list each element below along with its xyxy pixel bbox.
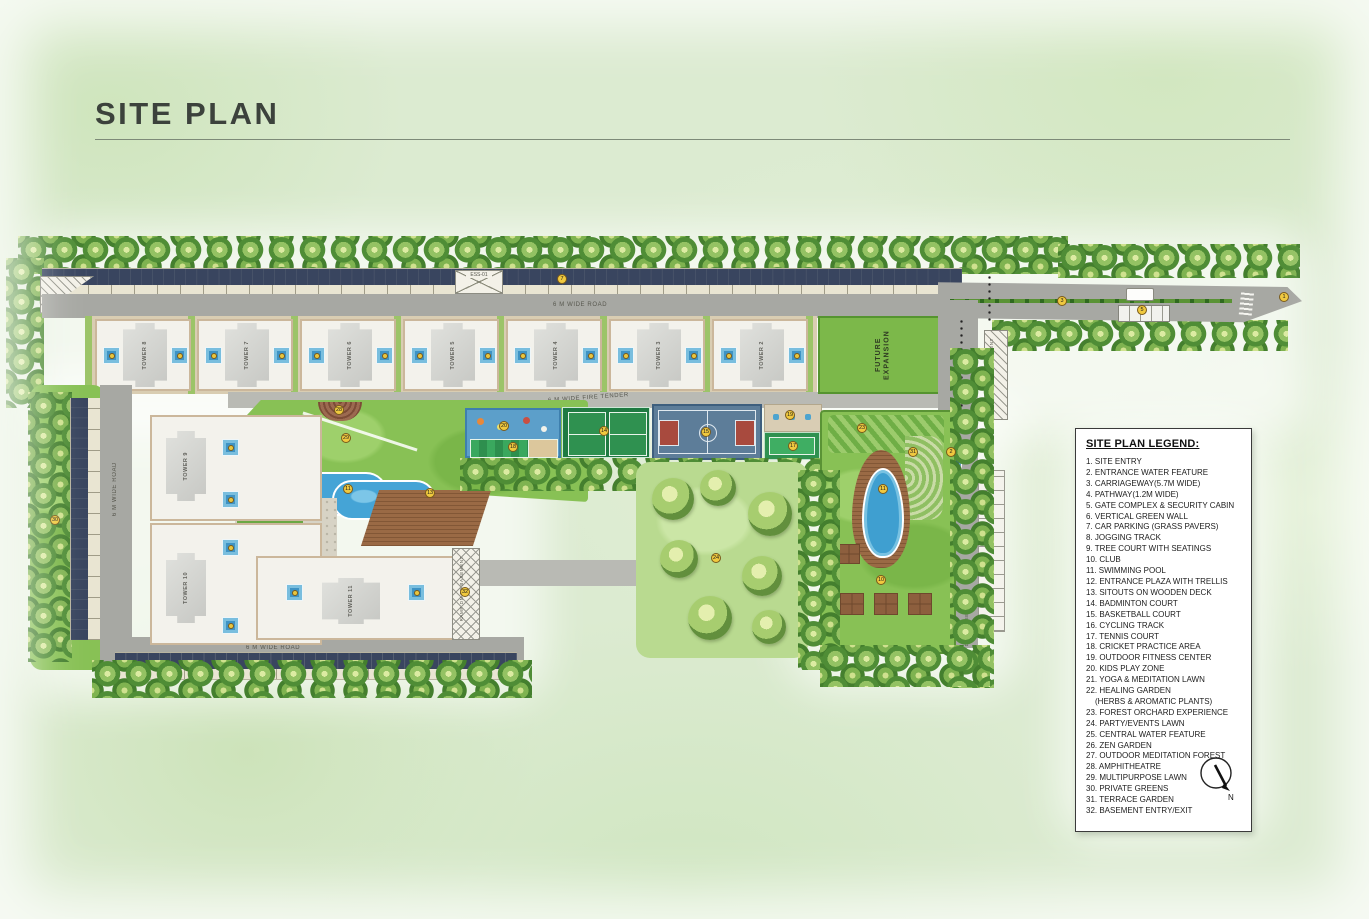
tree-court-seating bbox=[376, 347, 393, 364]
legend-item: 3. CARRIAGEWAY(5.7M WIDE) bbox=[1086, 479, 1243, 490]
legend-item: 26. ZEN GARDEN bbox=[1086, 741, 1243, 752]
site-plan-canvas: SITE PLAN ESS-01 6 M WIDE ROAD TOWER 8TO… bbox=[0, 0, 1369, 919]
tree-border-entry-top bbox=[1058, 244, 1300, 278]
zebra-crossing bbox=[1239, 290, 1254, 315]
tree-border-cluster-left bbox=[28, 392, 72, 662]
top-road bbox=[42, 294, 962, 318]
page-title: SITE PLAN bbox=[95, 96, 279, 132]
amenity-marker: 15 bbox=[701, 427, 711, 437]
future-expansion-area: FUTURE EXPANSION bbox=[818, 316, 948, 394]
legend-item: 2. ENTRANCE WATER FEATURE bbox=[1086, 468, 1243, 479]
ess-label: ESS-01 bbox=[466, 272, 492, 278]
tree-court-seating bbox=[408, 584, 425, 601]
tree-court-seating bbox=[514, 347, 531, 364]
amenity-marker: 10 bbox=[876, 575, 886, 585]
legend-item: 4. PATHWAY(1.2M WIDE) bbox=[1086, 490, 1243, 501]
tree-border-club-bottom bbox=[820, 645, 990, 687]
legend-item: 16. CYCLING TRACK bbox=[1086, 621, 1243, 632]
tower-building: TOWER 4 bbox=[534, 323, 578, 387]
legend-item: 14. BADMINTON COURT bbox=[1086, 599, 1243, 610]
forest-tree bbox=[742, 556, 782, 596]
electrical-substation-box: ESS-01 bbox=[455, 270, 503, 294]
legend-item: 24. PARTY/EVENTS LAWN bbox=[1086, 719, 1243, 730]
wooden-deck bbox=[361, 490, 491, 546]
sitout-deck bbox=[908, 593, 932, 615]
tree-court-seating bbox=[222, 491, 239, 508]
tower-building: TOWER 3 bbox=[637, 323, 681, 387]
tower-building: TOWER 10 bbox=[166, 553, 206, 623]
play-equipment bbox=[477, 418, 484, 425]
legend-item: (HERBS & AROMATIC PLANTS) bbox=[1086, 697, 1243, 708]
tower-label: TOWER 6 bbox=[347, 341, 353, 369]
play-equipment bbox=[541, 426, 547, 432]
legend-item: 1. SITE ENTRY bbox=[1086, 457, 1243, 468]
tree-court-seating bbox=[479, 347, 496, 364]
amenity-marker: 31 bbox=[908, 447, 918, 457]
tower-label: TOWER 2 bbox=[759, 341, 765, 369]
cricket-practice-area bbox=[470, 439, 530, 458]
amenity-marker: 19 bbox=[785, 410, 795, 420]
tree-court-seating bbox=[582, 347, 599, 364]
amenity-marker: 17 bbox=[788, 441, 798, 451]
title-underline bbox=[95, 139, 1290, 140]
tree-court-seating bbox=[411, 347, 428, 364]
legend-item: 20. KIDS PLAY ZONE bbox=[1086, 664, 1243, 675]
sitout-deck bbox=[838, 544, 860, 564]
forest-tree bbox=[748, 492, 792, 536]
amenity-marker: 32 bbox=[460, 587, 470, 597]
tower-plot: TOWER 4 bbox=[506, 319, 602, 391]
forest-tree bbox=[652, 478, 694, 520]
tower-label: TOWER 3 bbox=[656, 341, 662, 369]
tower-plot: TOWER 11 bbox=[256, 556, 454, 640]
amenity-marker: 7 bbox=[557, 274, 567, 284]
bottom-road-label: 6 M WIDE ROAD bbox=[246, 645, 300, 651]
legend-item: 18. CRICKET PRACTICE AREA bbox=[1086, 642, 1243, 653]
forest-tree bbox=[688, 596, 732, 640]
tree-court-seating bbox=[222, 617, 239, 634]
tower-building: TOWER 5 bbox=[431, 323, 475, 387]
tower-label: TOWER 10 bbox=[183, 572, 189, 604]
tree-court-seating bbox=[617, 347, 634, 364]
tree-court-seating bbox=[205, 347, 222, 364]
legend-item: 11. SWIMMING POOL bbox=[1086, 566, 1243, 577]
amenity-marker: 20 bbox=[499, 421, 509, 431]
legend-item: 10. CLUB bbox=[1086, 555, 1243, 566]
tower-label: TOWER 5 bbox=[450, 341, 456, 369]
legend-title: SITE PLAN LEGEND: bbox=[1086, 438, 1243, 450]
basement-dotted-line bbox=[986, 274, 993, 322]
tower-label: TOWER 4 bbox=[553, 341, 559, 369]
tower-building: TOWER 6 bbox=[328, 323, 372, 387]
tower-label: TOWER 9 bbox=[183, 452, 189, 480]
tree-court-seating bbox=[103, 347, 120, 364]
forest-tree bbox=[660, 540, 698, 578]
tower-building: TOWER 7 bbox=[225, 323, 269, 387]
tower-label: TOWER 11 bbox=[348, 585, 354, 617]
tower-label: TOWER 8 bbox=[142, 341, 148, 369]
legend-item: 8. JOGGING TRACK bbox=[1086, 533, 1243, 544]
legend-item: 19. OUTDOOR FITNESS CENTER bbox=[1086, 653, 1243, 664]
future-expansion-label: FUTURE EXPANSION bbox=[875, 318, 892, 392]
amenity-marker: 24 bbox=[711, 553, 721, 563]
legend-item: 7. CAR PARKING (GRASS PAVERS) bbox=[1086, 522, 1243, 533]
amenity-marker: 14 bbox=[599, 426, 609, 436]
tower-plot: TOWER 6 bbox=[300, 319, 396, 391]
amenity-marker: 5 bbox=[1137, 305, 1147, 315]
security-vehicle bbox=[1126, 288, 1154, 301]
tree-court-seating bbox=[788, 347, 805, 364]
left-road-label: 6 M WIDE ROAD bbox=[112, 462, 118, 516]
tower-building: TOWER 11 bbox=[322, 578, 380, 624]
badminton-court-lines bbox=[609, 412, 647, 456]
tree-court-seating bbox=[685, 347, 702, 364]
tower-plot: TOWER 2 bbox=[712, 319, 808, 391]
tower-building: TOWER 9 bbox=[166, 431, 206, 501]
tower-label: TOWER 7 bbox=[244, 341, 250, 369]
tree-border-entry-bottom bbox=[992, 320, 1288, 351]
sitout-deck bbox=[840, 593, 864, 615]
amenity-marker: 29 bbox=[341, 433, 351, 443]
amenity-marker: 2 bbox=[946, 447, 956, 457]
amenity-marker: 1 bbox=[1279, 292, 1289, 302]
fitness-equipment bbox=[805, 414, 811, 420]
legend-item: 15. BASKETBALL COURT bbox=[1086, 610, 1243, 621]
tower-plot: TOWER 9 bbox=[150, 415, 322, 521]
tree-court-seating bbox=[171, 347, 188, 364]
amenity-marker: 18 bbox=[508, 442, 518, 452]
legend-item: 25. CENTRAL WATER FEATURE bbox=[1086, 730, 1243, 741]
left-road bbox=[100, 385, 132, 667]
legend-item: 23. FOREST ORCHARD EXPERIENCE bbox=[1086, 708, 1243, 719]
tree-court-seating bbox=[222, 439, 239, 456]
amenity-marker: 30 bbox=[50, 515, 60, 525]
basketball-key bbox=[735, 420, 755, 446]
amenity-marker: 13 bbox=[425, 488, 435, 498]
amenity-marker: 3 bbox=[1057, 296, 1067, 306]
legend-item: 6. VERTICAL GREEN WALL bbox=[1086, 512, 1243, 523]
tower-plot: TOWER 7 bbox=[197, 319, 293, 391]
legend-item: 13. SITOUTS ON WOODEN DECK bbox=[1086, 588, 1243, 599]
forest-tree bbox=[700, 470, 736, 506]
tree-border-club-right bbox=[950, 348, 994, 688]
play-equipment bbox=[523, 417, 530, 424]
tree-court-seating bbox=[720, 347, 737, 364]
tower-building: TOWER 8 bbox=[123, 323, 167, 387]
top-road-label: 6 M WIDE ROAD bbox=[553, 302, 607, 308]
tower-building: TOWER 2 bbox=[740, 323, 784, 387]
north-arrow: N bbox=[1191, 753, 1243, 809]
legend-item: 17. TENNIS COURT bbox=[1086, 632, 1243, 643]
fitness-equipment bbox=[773, 414, 779, 420]
tree-border-club-left bbox=[798, 470, 840, 670]
cricket-pitch bbox=[528, 439, 558, 458]
sitout-deck bbox=[874, 593, 898, 615]
legend-item: 22. HEALING GARDEN bbox=[1086, 686, 1243, 697]
amenity-marker: 11 bbox=[343, 484, 353, 494]
legend-item: 5. GATE COMPLEX & SECURITY CABIN bbox=[1086, 501, 1243, 512]
tower-plot: TOWER 3 bbox=[609, 319, 705, 391]
tree-court-seating bbox=[308, 347, 325, 364]
forest-tree bbox=[752, 610, 786, 644]
tree-border-cluster-bottom bbox=[92, 660, 532, 698]
tree-court-seating bbox=[222, 539, 239, 556]
tower-plot: TOWER 5 bbox=[403, 319, 499, 391]
tower-plot: TOWER 8 bbox=[95, 319, 191, 391]
amenity-marker: 23 bbox=[857, 423, 867, 433]
amenity-marker: 28 bbox=[334, 405, 344, 415]
basketball-key bbox=[659, 420, 679, 446]
legend-item: 21. YOGA & MEDITATION LAWN bbox=[1086, 675, 1243, 686]
amenity-marker: 11 bbox=[878, 484, 888, 494]
tree-court-seating bbox=[273, 347, 290, 364]
legend-item: 9. TREE COURT WITH SEATINGS bbox=[1086, 544, 1243, 555]
legend-box: SITE PLAN LEGEND: 1. SITE ENTRY2. ENTRAN… bbox=[1075, 428, 1252, 832]
legend-item: 12. ENTRANCE PLAZA WITH TRELLIS bbox=[1086, 577, 1243, 588]
tree-court-seating bbox=[286, 584, 303, 601]
north-label: N bbox=[1228, 793, 1234, 802]
